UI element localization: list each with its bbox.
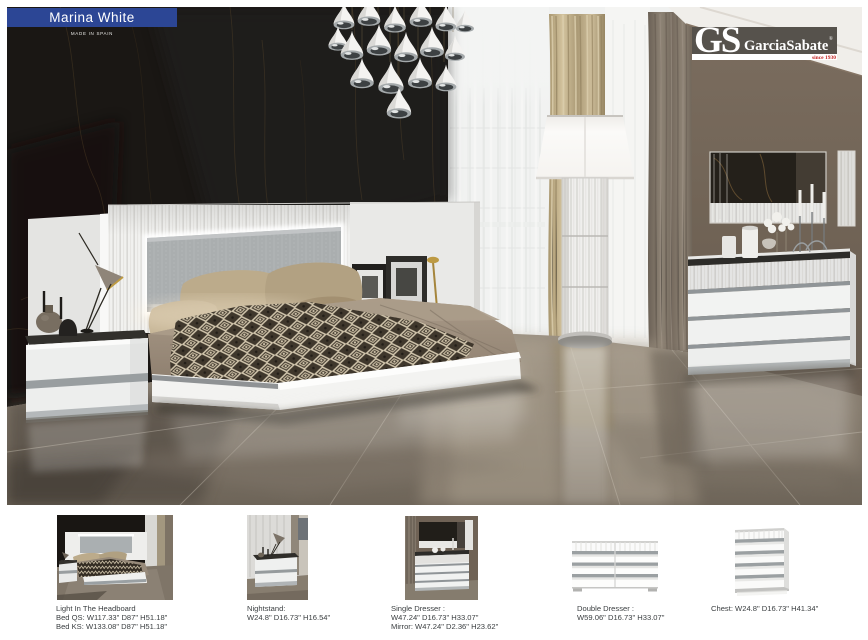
svg-text:GarciaSabate: GarciaSabate [744,38,829,54]
svg-text:since 1930: since 1930 [812,55,836,61]
svg-text:®: ® [829,36,833,42]
